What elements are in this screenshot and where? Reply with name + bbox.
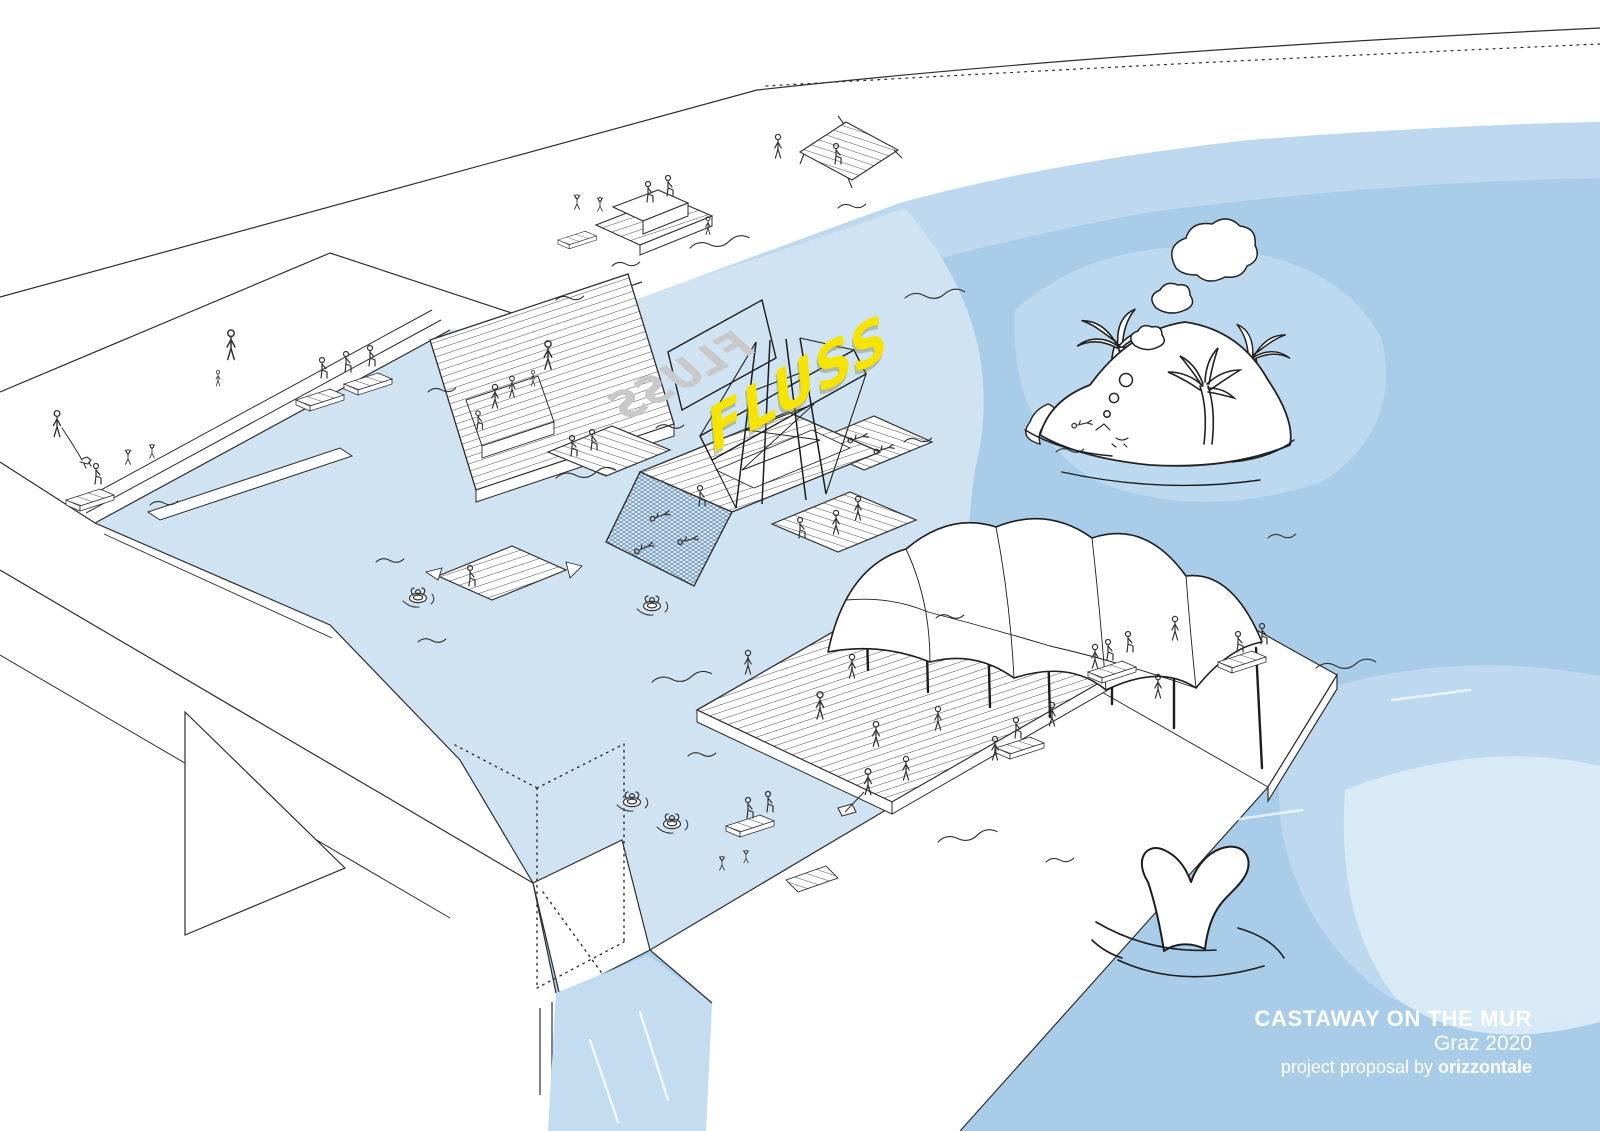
child-jumping bbox=[125, 450, 131, 464]
bench bbox=[558, 231, 596, 249]
person-standing bbox=[775, 134, 781, 158]
project-title: CASTAWAY ON THE MUR bbox=[1255, 1006, 1532, 1032]
title-block: CASTAWAY ON THE MUR Graz 2020 project pr… bbox=[1255, 1006, 1532, 1078]
project-location-year: Graz 2020 bbox=[1255, 1032, 1532, 1057]
child-standing bbox=[216, 371, 220, 386]
child-jumping bbox=[149, 445, 155, 459]
person-sitting bbox=[368, 346, 376, 367]
studio-name: orizzontale bbox=[1438, 1057, 1532, 1077]
bank-top-path-dotted bbox=[766, 44, 1600, 86]
person-standing bbox=[227, 330, 235, 360]
child-jumping bbox=[574, 195, 580, 209]
person-sitting bbox=[94, 464, 102, 485]
person-walking-dog bbox=[53, 411, 60, 437]
illustration-canvas: FLUSS FLUSS FLUSS bbox=[0, 0, 1600, 1131]
dog-leash bbox=[62, 428, 91, 468]
bench bbox=[66, 489, 114, 511]
person-sitting bbox=[666, 176, 674, 197]
castaway-scene-svg: FLUSS FLUSS FLUSS bbox=[0, 0, 1600, 1131]
tiered-seating bbox=[596, 190, 712, 255]
child-jumping bbox=[597, 198, 603, 212]
bank-left-edge bbox=[0, 462, 95, 523]
promenade-inner-edge bbox=[0, 253, 330, 392]
picnic-table bbox=[800, 116, 902, 188]
project-credit: project proposal by orizzontale bbox=[1255, 1057, 1532, 1078]
